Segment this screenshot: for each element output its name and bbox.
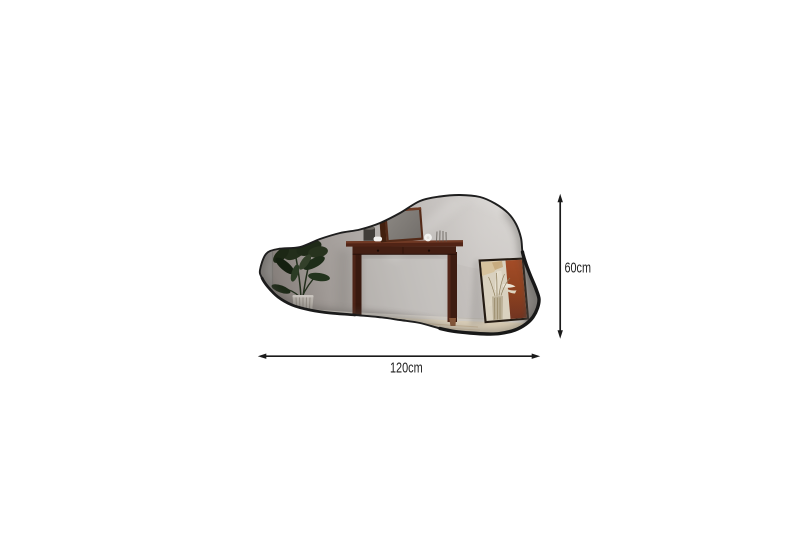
svg-text:60cm: 60cm — [565, 260, 592, 276]
svg-text:120cm: 120cm — [390, 361, 423, 377]
